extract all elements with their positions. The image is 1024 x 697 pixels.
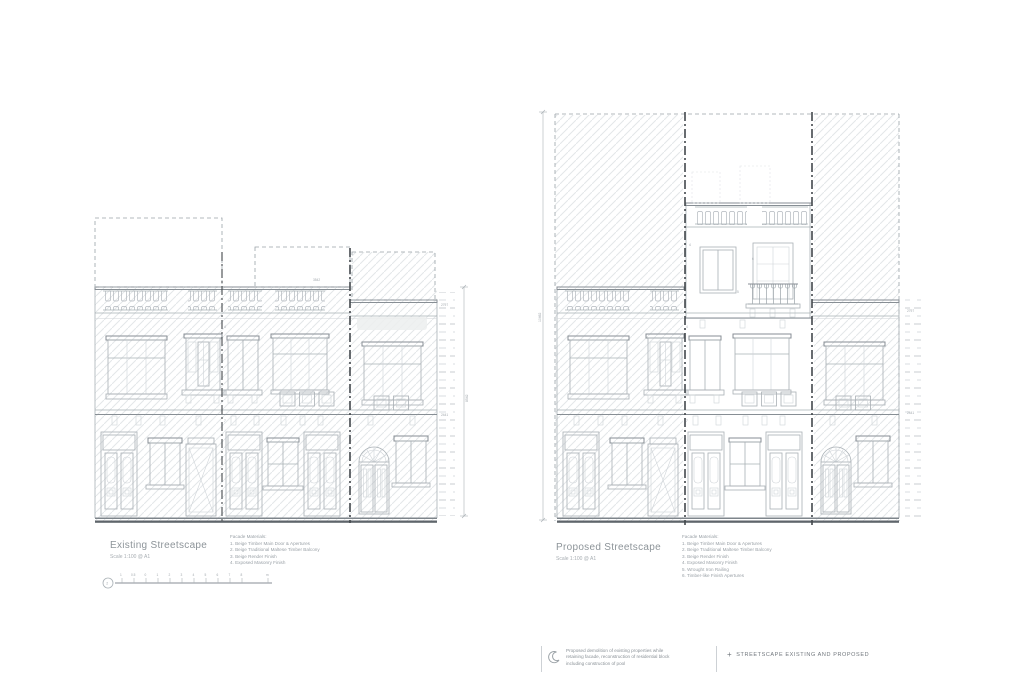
revision-note-line: including construction of pool — [566, 661, 718, 667]
existing-dimension-ladder: 2797 2441 — [439, 292, 455, 516]
existing-title: Existing Streetscape — [110, 540, 207, 551]
existing-hatch-right-upper — [352, 252, 435, 287]
existing-height-dimension: 8542 — [460, 285, 469, 518]
note-divider — [716, 646, 717, 672]
scale-bar-ref: 2 — [106, 582, 108, 586]
callout-5: 5 — [737, 290, 739, 294]
existing-drawing: 3542 2797 2441 8542 — [95, 218, 469, 523]
scale-bar-ticks — [122, 578, 268, 583]
existing-materials-list: Facade Materials: 1. Beige Timber Main D… — [230, 534, 320, 567]
setback-floor-outline — [692, 172, 720, 203]
plus-icon: + — [727, 651, 732, 659]
ladder-label-upper: 2797 — [907, 309, 914, 313]
material-item: 2. Beige Traditional Maltese Timber Balc… — [682, 547, 772, 554]
third-floor-shuttered-window — [700, 247, 736, 293]
dashed-envelope-middle — [255, 247, 350, 287]
revision-cloud-icon — [547, 650, 562, 665]
proposed-dimension-ladder: 2797 2441 — [905, 298, 921, 520]
sheet-caption-text: STREETSCAPE EXISTING AND PROPOSED — [736, 652, 869, 658]
svg-text:8: 8 — [241, 573, 243, 577]
svg-text:0.5: 0.5 — [131, 573, 136, 577]
note-divider — [541, 646, 542, 672]
revision-note: Proposed demolition of existing properti… — [566, 648, 718, 667]
callout-4: 4 — [689, 243, 691, 247]
proposed-hatch-right — [814, 115, 899, 521]
width-dimension-label: 3542 — [313, 278, 320, 282]
proposed-hatch-left — [555, 115, 683, 521]
scale-bar: 2 1 0.5 0 1 2 3 4 5 6 7 8 m — [103, 573, 272, 588]
ladder-label-upper: 2797 — [441, 303, 448, 307]
material-item: 2. Beige Traditional Maltese Timber Balc… — [230, 547, 320, 554]
height-dimension-label: 8542 — [465, 394, 469, 402]
ladder-label-lower: 2441 — [907, 411, 914, 415]
svg-text:7: 7 — [229, 573, 231, 577]
sheet-caption: + STREETSCAPE EXISTING AND PROPOSED — [727, 651, 869, 659]
svg-text:1: 1 — [120, 573, 122, 577]
material-item: 4. Exposed Masonry Finish — [230, 560, 320, 567]
proposed-scale-label: Scale 1:100 @ A1 — [556, 556, 596, 562]
svg-text:6: 6 — [217, 573, 219, 577]
proposed-materials-list: Facade Materials: 1. Beige Timber Main D… — [682, 534, 772, 580]
ladder-label-lower: 2441 — [441, 413, 448, 417]
svg-text:1: 1 — [157, 573, 159, 577]
svg-text:5: 5 — [205, 573, 207, 577]
watermark — [357, 317, 427, 330]
svg-text:2: 2 — [169, 573, 171, 577]
proposed-third-storey: 4 6 5 — [685, 166, 812, 328]
scale-bar-unit: m — [266, 573, 269, 577]
material-item: 6. Timber-like Finish Apertures — [682, 573, 772, 580]
existing-scale-label: Scale 1:100 @ A1 — [110, 554, 150, 560]
wrought-iron-railing — [746, 284, 800, 317]
height-dimension-label: 10462 — [538, 312, 542, 322]
streetscape-elevations-canvas: 4 7 3542 2797 2441 — [0, 0, 1024, 697]
proposed-drawing: 4 6 5 10462 2797 2441 — [538, 110, 921, 525]
svg-text:0: 0 — [145, 573, 147, 577]
proposed-height-dimension: 10462 — [538, 110, 547, 522]
svg-text:3: 3 — [181, 573, 183, 577]
dashed-envelope-left — [95, 218, 222, 287]
svg-text:4: 4 — [193, 573, 195, 577]
setback-floor-outline — [740, 166, 770, 203]
scale-bar-labels: 1 0.5 0 1 2 3 4 5 6 7 8 m — [120, 573, 269, 577]
callout-6: 6 — [752, 257, 754, 261]
proposed-title: Proposed Streetscape — [556, 542, 661, 553]
drawing-sheet: 4 7 3542 2797 2441 — [0, 0, 1024, 697]
